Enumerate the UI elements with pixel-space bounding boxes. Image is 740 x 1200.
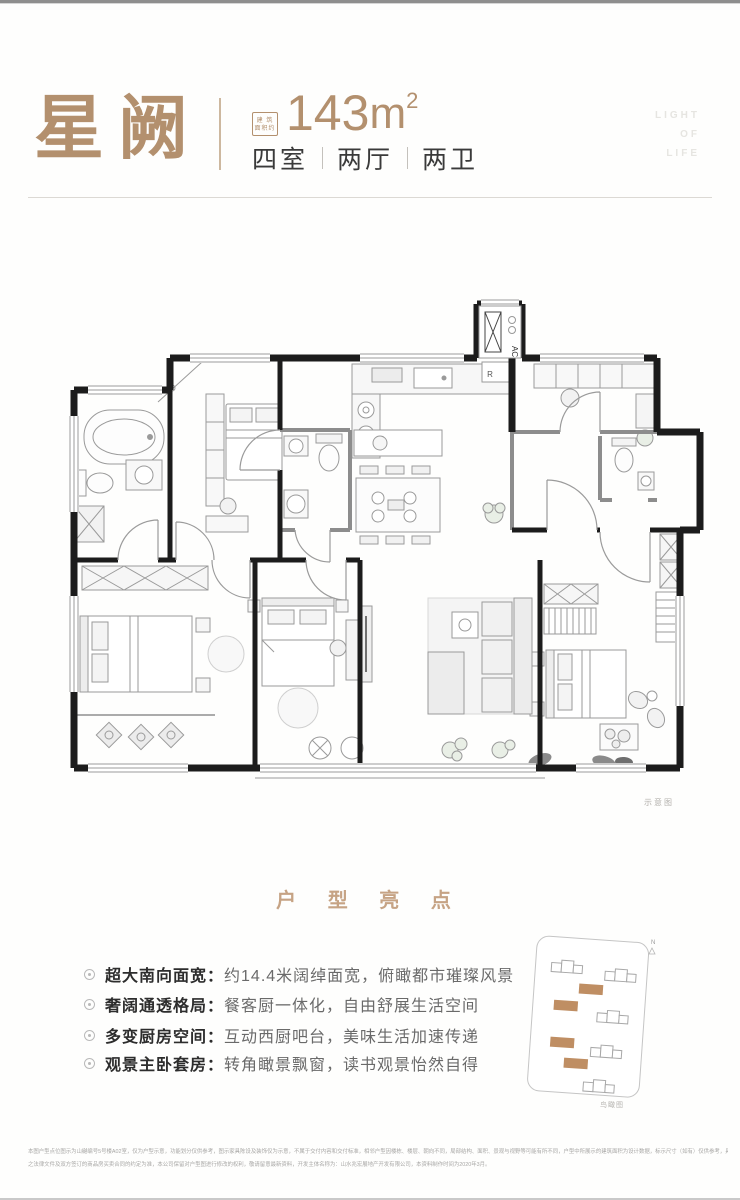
chair [561, 389, 579, 407]
coffee-table [452, 612, 478, 638]
disclaimer-line1: 本图户型点位图示为山樾编号5号楼A02室，仅为户型示意，功能划分仅供参考，图示家… [28, 1146, 728, 1159]
north-arrow-icon [649, 948, 655, 954]
room-separator [322, 147, 323, 169]
highlight-desc: 餐客厨一体化，自由舒展生活空间 [224, 992, 479, 1016]
highlight-item: 多变厨房空间： 互动西厨吧台，美味生活加速传递 [84, 1024, 479, 1046]
desk [346, 620, 358, 680]
area-label-line2: 面积约 [253, 125, 277, 133]
closet-rail [544, 608, 596, 634]
watermark-text: LIGHT OF LIFE [655, 106, 700, 163]
bullet-icon [84, 1030, 95, 1041]
toilet [615, 448, 633, 472]
floorplan-poster: 星阙 建 筑 面积约 143m2 四室 两厅 两卫 LIGHT OF LIFE [0, 0, 740, 1200]
highlight-item: 观景主卧套房： 转角瞰景飘窗，读书观景怡然自得 [84, 1052, 479, 1074]
floorplan-furniture [74, 362, 682, 771]
floorplan-drawing: AC R [58, 288, 706, 818]
round-rug [278, 688, 318, 728]
room-summary: 四室 两厅 两卫 [252, 140, 478, 176]
room-separator [407, 147, 408, 169]
sofa [514, 598, 532, 714]
watermark-line: OF [655, 125, 700, 144]
room-count-baths: 两卫 [422, 140, 478, 176]
site-boundary [527, 935, 650, 1097]
highlight-desc: 互动西厨吧台，美味生活加速传递 [224, 1023, 479, 1047]
chaise [428, 652, 464, 714]
header-divider [28, 197, 712, 198]
closet [544, 584, 598, 604]
highlight-desc: 约14.4米阔绰面宽，俯瞰都市璀璨风景 [224, 962, 514, 986]
unit-title: 星阙 [34, 86, 202, 170]
highlight-label: 观景主卧套房： [105, 1051, 224, 1075]
watermark-line: LIGHT [655, 106, 700, 125]
highlights-title: 户 型 亮 点 [0, 884, 740, 913]
bullet-icon [84, 1058, 95, 1069]
watermark-line: LIFE [655, 144, 700, 163]
toilet [319, 445, 339, 471]
siteplan-map: N [515, 928, 715, 1113]
disclaimer-line2: 之法律文件及双方签订的商品房买卖合同的约定为准，本公司保留对户型图进行修改的权利… [28, 1159, 728, 1172]
highlight-label: 多变厨房空间： [105, 1023, 224, 1047]
highlight-item: 奢阔通透格局： 餐客厨一体化，自由舒展生活空间 [84, 993, 479, 1015]
bullet-icon [84, 999, 95, 1010]
highlight-label: 超大南向面宽： [105, 962, 224, 986]
siteplan-caption: 鸟瞰图 [600, 1100, 624, 1110]
pillow [96, 722, 121, 747]
area-label-line1: 建 筑 [253, 117, 277, 125]
plan-caption: 示意图 [644, 797, 674, 808]
ac-unit: AC [479, 306, 521, 358]
north-label: N [651, 940, 655, 946]
shower-glass [158, 362, 202, 402]
highlight-item: 超大南向面宽： 约14.4米阔绰面宽，俯瞰都市璀璨风景 [84, 963, 514, 985]
room-count-living: 两厅 [337, 140, 393, 176]
desk [206, 516, 248, 532]
round-rug [208, 636, 244, 672]
fridge-label: R [487, 370, 493, 379]
room-count-bedrooms: 四室 [252, 140, 308, 176]
highlight-label: 奢阔通透格局： [105, 992, 224, 1016]
area-value: 143m2 [286, 88, 418, 140]
title-divider [219, 98, 221, 170]
area-number: 143 [286, 88, 369, 138]
study-desk [534, 364, 656, 388]
highlight-desc: 转角瞰景飘窗，读书观景怡然自得 [224, 1051, 479, 1075]
area-label-box: 建 筑 面积约 [252, 112, 278, 136]
area-exponent: 2 [406, 90, 418, 112]
bullet-icon [84, 969, 95, 980]
ac-label: AC [510, 346, 519, 357]
kitchen-island [354, 430, 442, 456]
lounge-chair [625, 688, 650, 712]
area-unit: m [369, 88, 406, 140]
top-border-light [0, 3, 740, 4]
